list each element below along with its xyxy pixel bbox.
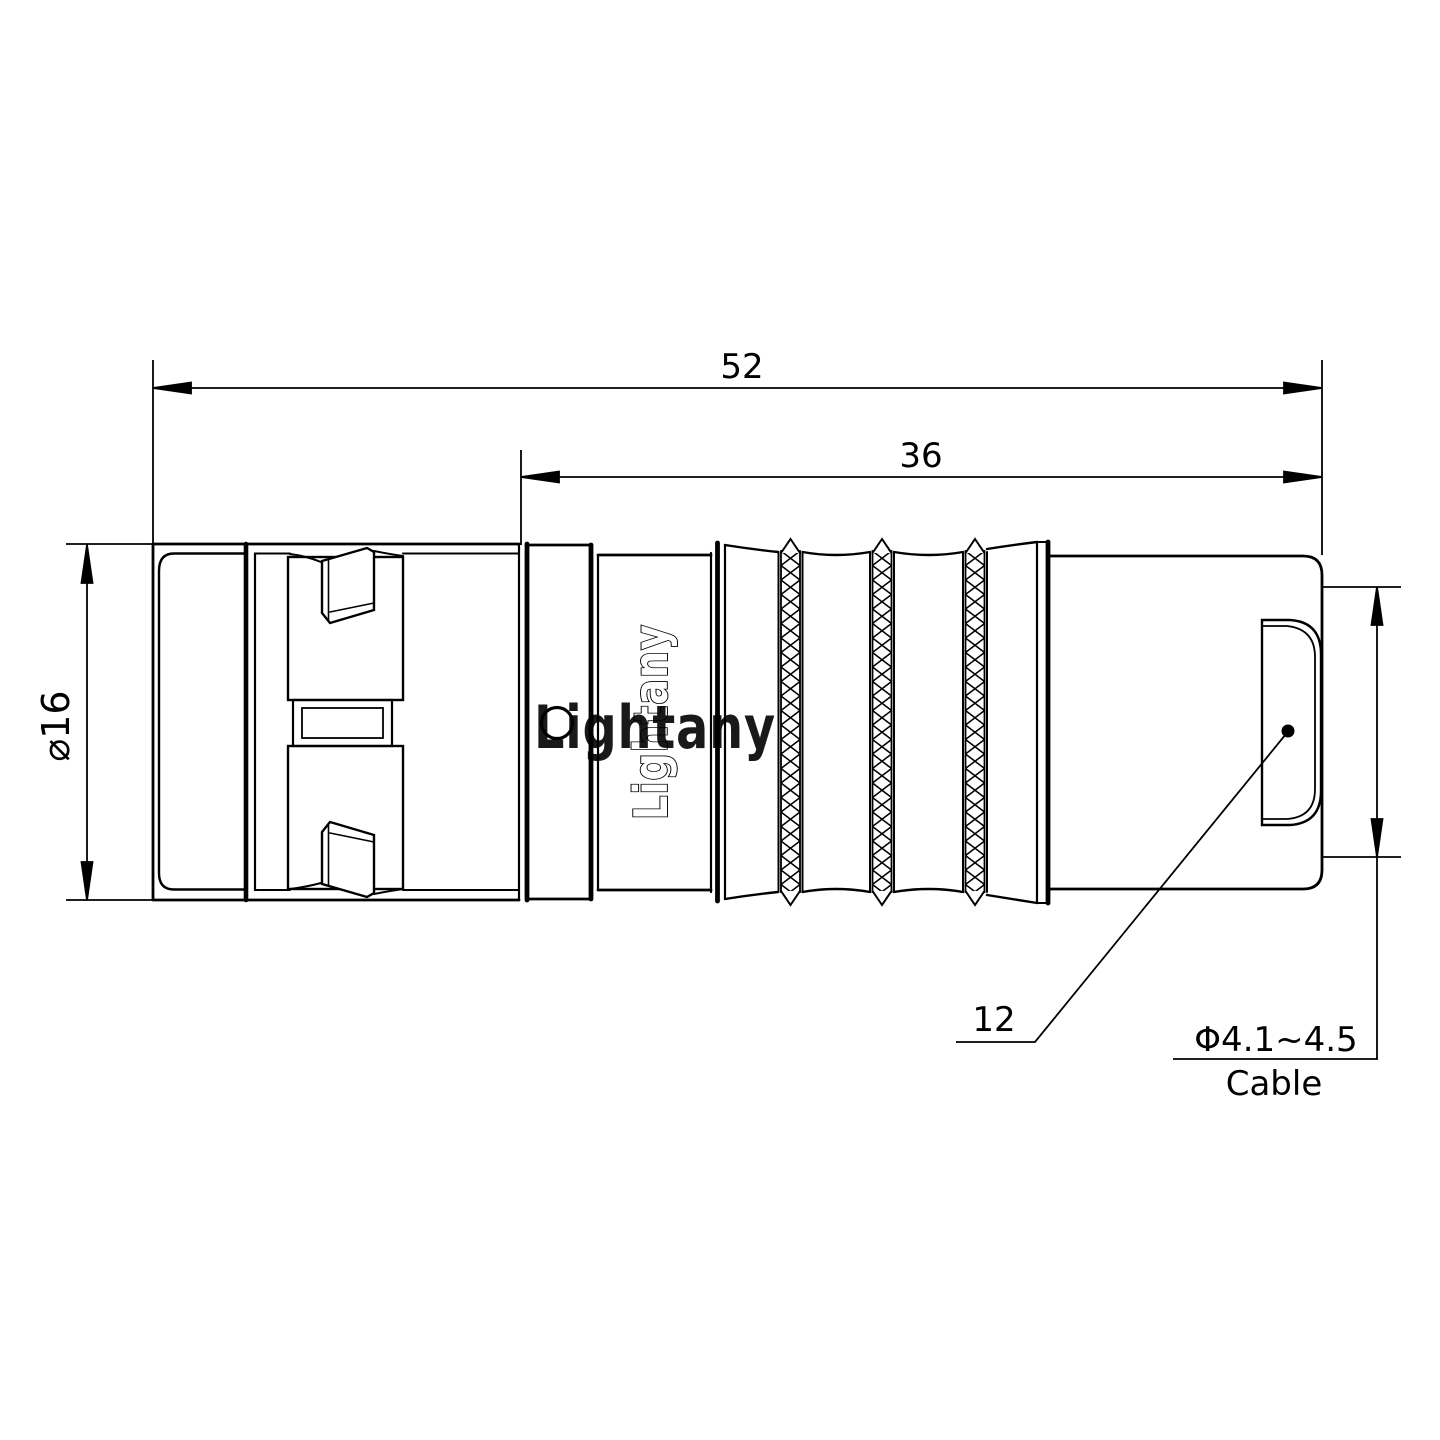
front-face-cap xyxy=(159,554,246,890)
dim-52-label: 52 xyxy=(720,347,763,387)
connector-drawing-canvas: Lightany xyxy=(0,0,1440,1440)
latch-hub-outer xyxy=(293,700,392,746)
dim-total-length xyxy=(153,360,1322,555)
dim-diameter-label: ⌀16 xyxy=(34,690,78,761)
front-latch-sleeve xyxy=(153,544,519,900)
dim-12-label: 12 xyxy=(972,1000,1015,1040)
brand-watermark: Lightany xyxy=(534,693,776,763)
knurl-band-3 xyxy=(963,539,987,905)
leader-dot xyxy=(1282,725,1295,738)
cable-boot xyxy=(1262,620,1321,825)
knurl-band-1 xyxy=(779,539,803,905)
knurl-band-2 xyxy=(870,539,894,905)
latch-hub-inner xyxy=(302,708,383,738)
connector-technical-drawing-page: Lightany xyxy=(0,0,1440,1440)
rear-collar xyxy=(1037,542,1048,903)
cable-range-label: Φ4.1~4.5 xyxy=(1194,1020,1357,1060)
leader-boot xyxy=(956,725,1295,1043)
latch-tab-bottom xyxy=(322,822,374,897)
dim-diameter xyxy=(66,544,157,900)
cable-word-label: Cable xyxy=(1226,1064,1323,1104)
latch-tab-top xyxy=(322,548,374,623)
dim-36-label: 36 xyxy=(899,436,942,476)
